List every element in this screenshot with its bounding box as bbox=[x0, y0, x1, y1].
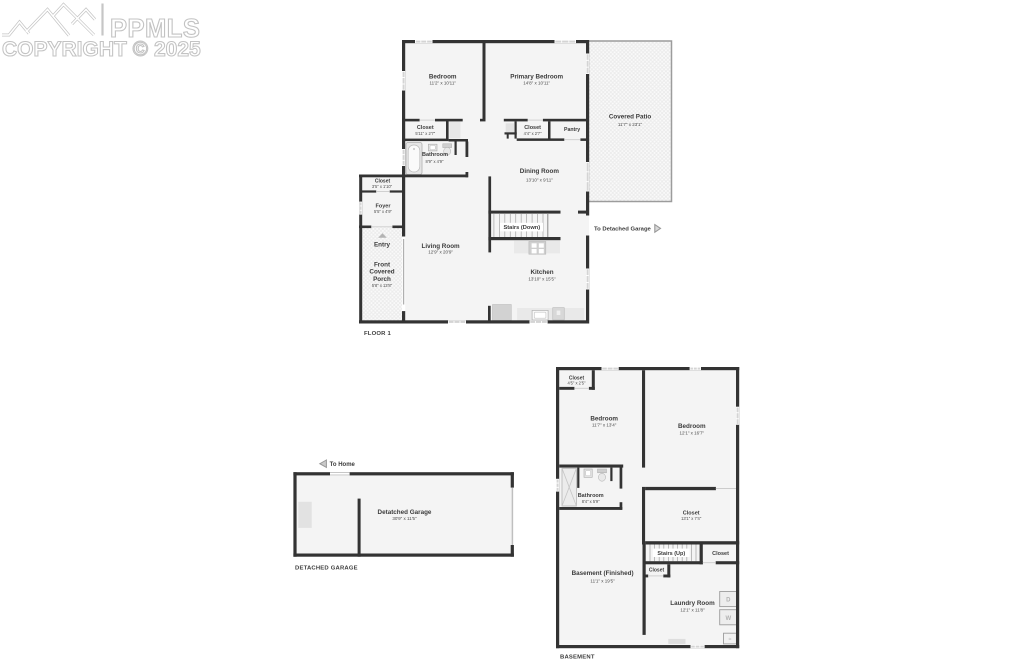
svg-text:Bathroom: Bathroom bbox=[422, 152, 448, 158]
svg-text:4'5" x 2'5": 4'5" x 2'5" bbox=[568, 380, 586, 385]
svg-text:13'1" x 7'4": 13'1" x 7'4" bbox=[681, 516, 702, 521]
svg-text:DETACHED GARAGE: DETACHED GARAGE bbox=[295, 566, 358, 572]
svg-text:8'9" x 4'9": 8'9" x 4'9" bbox=[426, 159, 444, 164]
svg-text:Kitchen: Kitchen bbox=[530, 269, 553, 276]
svg-text:11'2" x 10'11": 11'2" x 10'11" bbox=[429, 80, 456, 85]
svg-text:12'1" x 16'7": 12'1" x 16'7" bbox=[679, 430, 704, 435]
svg-text:Stairs (Down): Stairs (Down) bbox=[503, 225, 540, 231]
svg-text:Bedroom: Bedroom bbox=[429, 73, 457, 80]
svg-text:Closet: Closet bbox=[712, 551, 729, 557]
svg-text:BASEMENT: BASEMENT bbox=[560, 655, 595, 661]
svg-text:Entry: Entry bbox=[374, 242, 391, 249]
svg-text:Closet: Closet bbox=[649, 568, 665, 574]
svg-text:13'10" x 15'5": 13'10" x 15'5" bbox=[528, 277, 556, 282]
svg-text:Covered: Covered bbox=[369, 269, 394, 276]
svg-text:Basement (Finished): Basement (Finished) bbox=[572, 570, 634, 577]
svg-text:Stairs (Up): Stairs (Up) bbox=[657, 551, 685, 557]
svg-text:Bedroom: Bedroom bbox=[590, 415, 618, 422]
svg-text:FLOOR 1: FLOOR 1 bbox=[364, 331, 391, 337]
svg-text:5'8" x 13'8": 5'8" x 13'8" bbox=[372, 283, 393, 288]
svg-text:Detatched Garage: Detatched Garage bbox=[378, 509, 432, 516]
svg-text:To Detached Garage: To Detached Garage bbox=[594, 226, 652, 232]
svg-text:Laundry Room: Laundry Room bbox=[670, 600, 715, 607]
svg-text:30'9" x 11'5": 30'9" x 11'5" bbox=[392, 516, 417, 521]
svg-text:W: W bbox=[725, 616, 731, 622]
svg-text:Porch: Porch bbox=[373, 276, 391, 283]
svg-text:5'5" x 4'9": 5'5" x 4'9" bbox=[374, 209, 392, 214]
svg-text:Primary Bedroom: Primary Bedroom bbox=[510, 73, 563, 80]
svg-text:13'10" x 9'11": 13'10" x 9'11" bbox=[526, 178, 553, 183]
svg-text:COPYRIGHT © 2025: COPYRIGHT © 2025 bbox=[2, 38, 201, 61]
svg-text:4'4" x 2'7": 4'4" x 2'7" bbox=[524, 131, 542, 136]
svg-text:Dining Room: Dining Room bbox=[520, 168, 560, 175]
svg-text:12'9" x 20'9": 12'9" x 20'9" bbox=[428, 250, 453, 255]
svg-text:12'1" x 11'8": 12'1" x 11'8" bbox=[680, 607, 705, 612]
svg-text:11'1" x 19'5": 11'1" x 19'5" bbox=[590, 578, 615, 583]
svg-text:3'5" x 1'10": 3'5" x 1'10" bbox=[372, 184, 393, 189]
svg-text:Front: Front bbox=[374, 261, 391, 268]
svg-text:To Home: To Home bbox=[330, 462, 356, 468]
svg-text:11'7" x 13'4": 11'7" x 13'4" bbox=[592, 422, 617, 427]
svg-text:14'8" x 10'11": 14'8" x 10'11" bbox=[523, 80, 550, 85]
svg-text:Pantry: Pantry bbox=[564, 127, 580, 133]
svg-text:≈: ≈ bbox=[729, 637, 732, 643]
svg-text:11'7" x 23'1": 11'7" x 23'1" bbox=[618, 122, 643, 127]
svg-text:D: D bbox=[726, 598, 731, 604]
svg-text:5'11" x 2'7": 5'11" x 2'7" bbox=[415, 131, 435, 136]
svg-text:Bedroom: Bedroom bbox=[678, 423, 706, 430]
svg-text:Covered Patio: Covered Patio bbox=[609, 114, 651, 121]
svg-text:8'4" x 5'9": 8'4" x 5'9" bbox=[582, 499, 600, 504]
